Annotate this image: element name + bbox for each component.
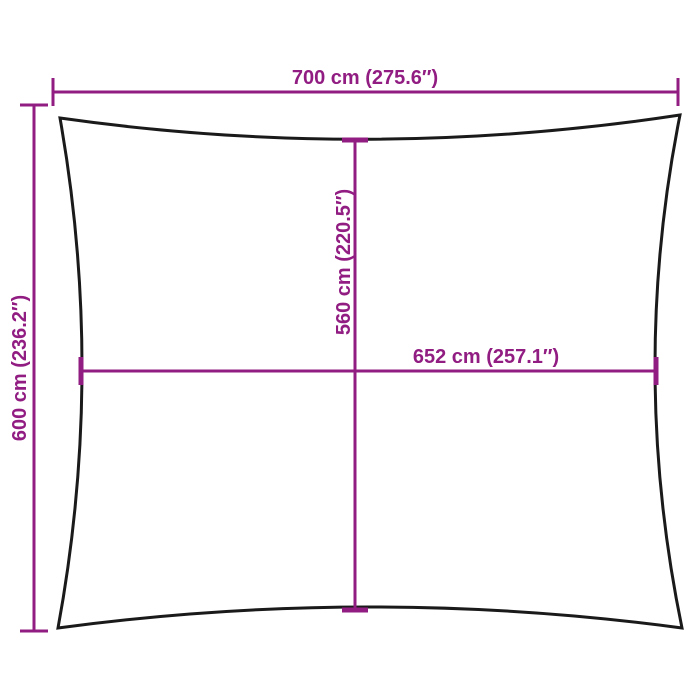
width-dimension: 700 cm (275.6″) — [53, 67, 678, 106]
inner-height-dimension-label: 560 cm (220.5″) — [333, 189, 355, 335]
inner-width-dimension: 652 cm (257.1″) — [81, 346, 656, 385]
height-dimension: 600 cm (236.2″) — [9, 105, 48, 631]
inner-height-dimension: 560 cm (220.5″) — [333, 140, 368, 610]
shade-sail-dimension-drawing: 700 cm (275.6″) 600 cm (236.2″) 560 cm (… — [0, 0, 700, 700]
width-dimension-label: 700 cm (275.6″) — [292, 67, 438, 89]
product-dimension-diagram: 700 cm (275.6″) 600 cm (236.2″) 560 cm (… — [0, 0, 700, 700]
height-dimension-label: 600 cm (236.2″) — [9, 295, 31, 441]
inner-width-dimension-label: 652 cm (257.1″) — [413, 346, 559, 368]
